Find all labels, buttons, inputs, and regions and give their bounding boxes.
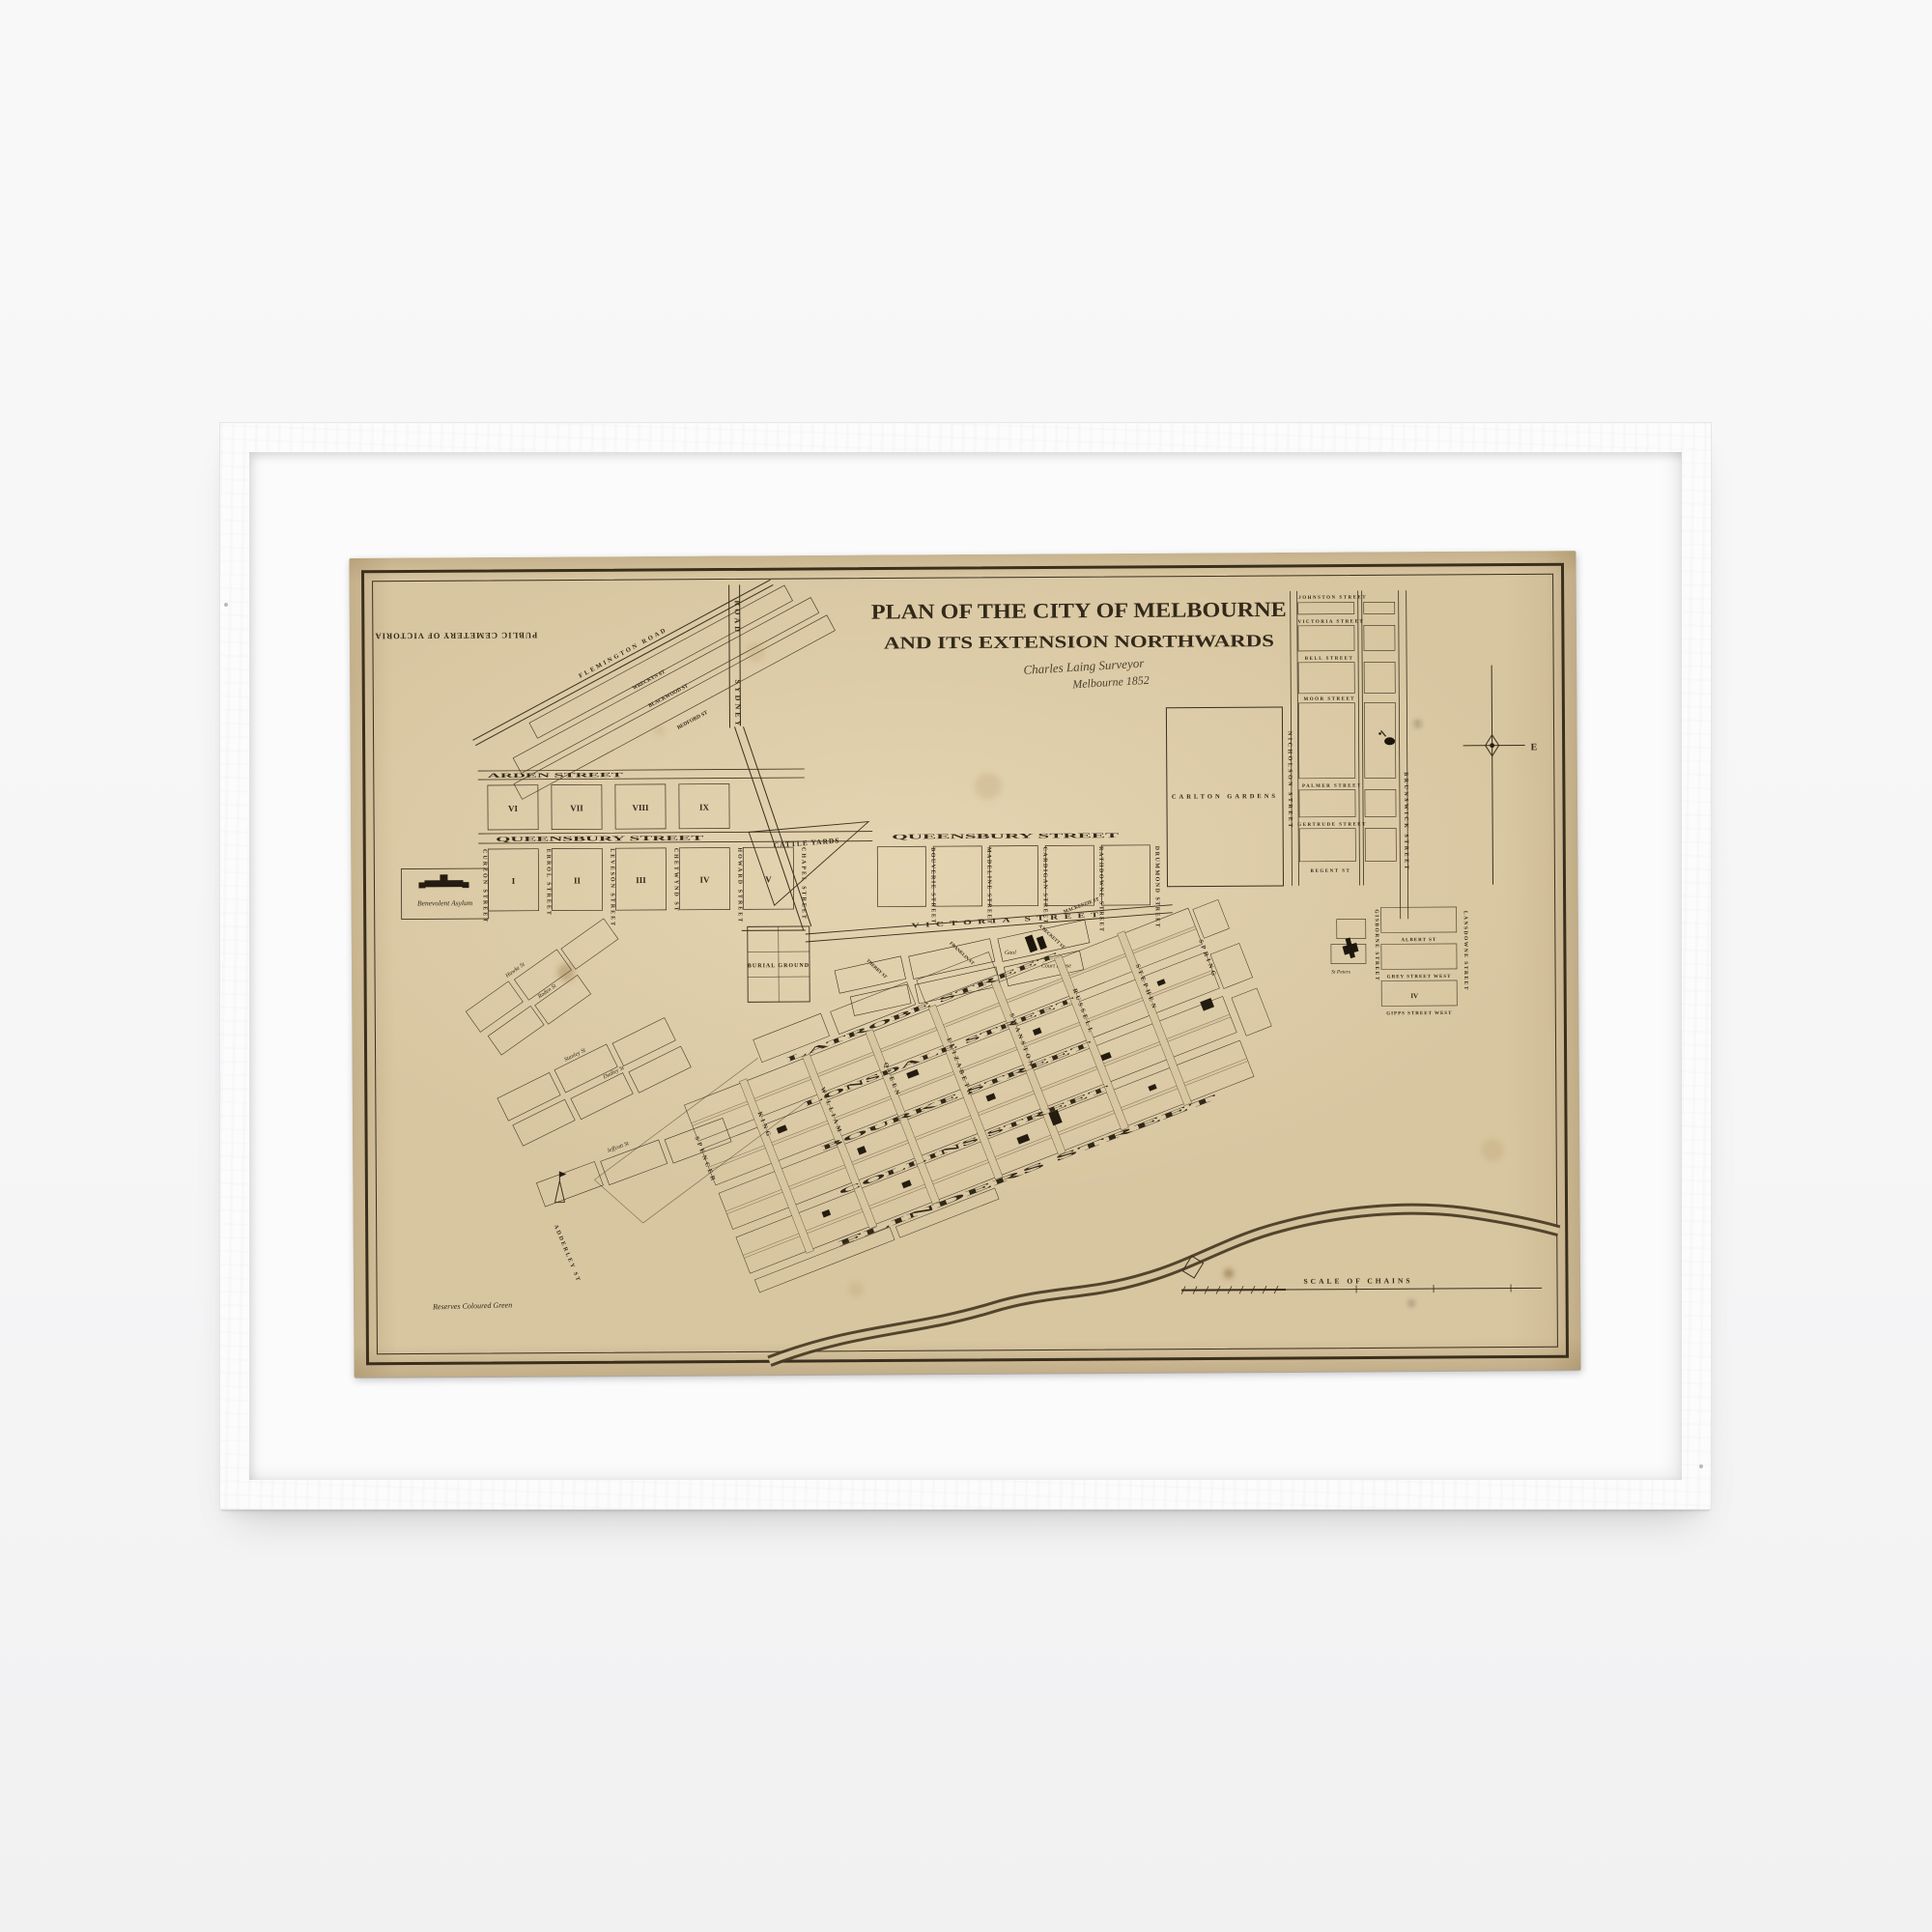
street-label-vertical: CARDIGAN STREET (1041, 846, 1047, 924)
picture-frame: PLAN OF THE CITY OF MELBOURNE AND ITS EX… (219, 422, 1712, 1510)
signature-date: Melbourne 1852 (1071, 673, 1150, 692)
street-label: PALMER STREET (1302, 783, 1362, 788)
street-label: MOOR STREET (1304, 697, 1356, 702)
street-label-vertical: ERROL STREET (545, 849, 551, 917)
wall-background: PLAN OF THE CITY OF MELBOURNE AND ITS EX… (0, 0, 1932, 1932)
gisborne-street-label: GISBORNE STREET (1374, 909, 1379, 981)
map-title: PLAN OF THE CITY OF MELBOURNE (871, 597, 1287, 624)
street-label: BLACKWOOD ST (648, 683, 690, 709)
street-label-vertical: DRUMMOND STREET (1153, 846, 1160, 928)
asylum-building-icon (418, 874, 469, 888)
block-numeral: VII (570, 803, 583, 812)
street-label: VICTORIA STREET (1297, 619, 1364, 624)
queensbury-street-label-east: QUEENSBURY STREET (892, 832, 1120, 840)
street-label: GIPPS STREET WEST (1386, 1011, 1452, 1016)
street-label: COLLINS STREET (838, 1083, 1112, 1196)
burial-ground-label: BURIAL GROUND (748, 963, 810, 969)
street-label-vertical: CURZON STREET (481, 849, 487, 923)
brunswick-street-label: BRUNSWICK STREET (1403, 772, 1409, 871)
hotham-fan-grid: FLEMINGTON ROAD WRECKYN ST BLACKWOOD ST … (469, 556, 841, 819)
block-numeral: VIII (632, 803, 649, 812)
street-label: GREY STREET WEST (1387, 975, 1452, 980)
street-label-vertical: LEVESON STREET (609, 848, 614, 927)
adderley-street-label: ADDERLEY ST (553, 1224, 582, 1284)
nicholson-street-label: NICHOLSON STREET (1287, 731, 1293, 830)
street-label-script: Jeffcott St (606, 1140, 630, 1154)
street-label-vertical: CHAPEL STREET (800, 847, 806, 921)
flagstaff-icon (554, 1172, 566, 1203)
street-label: FRANKLIN ST (948, 942, 975, 967)
gaol-label: Gaol (1005, 951, 1016, 956)
court-house-label: Court House (1041, 963, 1071, 969)
street-label: BEDFORD ST (676, 710, 709, 731)
map-paper: PLAN OF THE CITY OF MELBOURNE AND ITS EX… (349, 551, 1580, 1378)
fitzroy-grid: JOHNSTON STREET VICTORIA STREET BELL STR… (1286, 590, 1409, 920)
block-numeral: III (636, 875, 646, 885)
st-peters-label: St Peters (1331, 970, 1350, 976)
ink-blot (1378, 730, 1395, 745)
lansdowne-street-label: LANSDOWNE STREET (1463, 911, 1469, 991)
street-label: BELL STREET (1305, 657, 1354, 662)
church-icon (1341, 936, 1360, 959)
street-label: REGENT ST (1310, 869, 1350, 874)
map-engraving: PLAN OF THE CITY OF MELBOURNE AND ITS EX… (349, 551, 1580, 1378)
scale-bar: SCALE OF CHAINS (1181, 1275, 1542, 1293)
street-label: WRECKYN ST (632, 669, 667, 692)
cemetery-note-rotated: PUBLIC CEMETERY OF VICTORIA (375, 631, 538, 641)
carlton-gardens: CARLTON GARDENS (1166, 707, 1283, 887)
map-title-block: PLAN OF THE CITY OF MELBOURNE AND ITS EX… (871, 597, 1288, 693)
benevolent-asylum: Benevolent Asylum (401, 868, 488, 920)
block-numeral: IV (699, 875, 710, 885)
flemington-road-label: FLEMINGTON ROAD (578, 626, 668, 679)
sydney-label: SYDNEY (733, 679, 742, 728)
street-label: ALBERT ST (1402, 938, 1437, 943)
block-numeral: II (574, 875, 582, 885)
arden-street-label: ARDEN STREET (488, 772, 625, 780)
carlton-grid: QUEENSBURY STREET BOUVERIE STREET MADELI… (805, 832, 1173, 942)
street-label: THERRY ST (865, 958, 888, 980)
mat-board: PLAN OF THE CITY OF MELBOURNE AND ITS EX… (249, 452, 1682, 1480)
frame-pin (1699, 1464, 1703, 1468)
reserves-note: Reserves Coloured Green (432, 1300, 512, 1311)
asylum-label: Benevolent Asylum (417, 898, 473, 907)
street-label-vertical: MADELINE STREET (985, 847, 991, 925)
cattle-yards: CATTLE YARDS (749, 822, 869, 906)
street-label-script: Hawke St (504, 961, 526, 980)
block-numeral: IX (699, 803, 710, 812)
map-border (363, 564, 1568, 1364)
block-numeral: I (512, 876, 516, 886)
street-label-script: Roden St (536, 983, 557, 1001)
street-label-vertical: BOUVERIE STREET (929, 847, 935, 924)
queensbury-street-label: QUEENSBURY STREET (496, 835, 704, 843)
street-label-vertical: CHETWYND ST (672, 848, 678, 913)
street-label-vertical: HOWARD STREET (736, 847, 742, 923)
block-numeral: VI (508, 804, 519, 813)
carlton-gardens-label: CARLTON GARDENS (1172, 793, 1278, 801)
map-subtitle: AND ITS EXTENSION NORTHWARDS (884, 631, 1274, 652)
east-melbourne-grid: GISBORNE STREET LANSDOWNE STREET ALBERT … (1331, 907, 1469, 1017)
compass-icon: E (1463, 665, 1538, 884)
block-numeral: IV (1410, 992, 1418, 1000)
burial-ground: BURIAL GROUND (748, 926, 810, 1002)
scale-label: SCALE OF CHAINS (1303, 1276, 1412, 1286)
yarra-river (769, 1208, 1560, 1362)
street-label: GERTRUDE STREET (1297, 822, 1367, 827)
frame-pin (224, 603, 228, 607)
compass-east-label: E (1531, 742, 1538, 753)
hotham-grid: ARDEN STREET QUEENSBURY STREET VI VII VI… (478, 769, 873, 928)
street-label: JOHNSTON STREET (1298, 595, 1367, 600)
street-label-vertical: RATHDOWNE STREET (1097, 846, 1104, 932)
